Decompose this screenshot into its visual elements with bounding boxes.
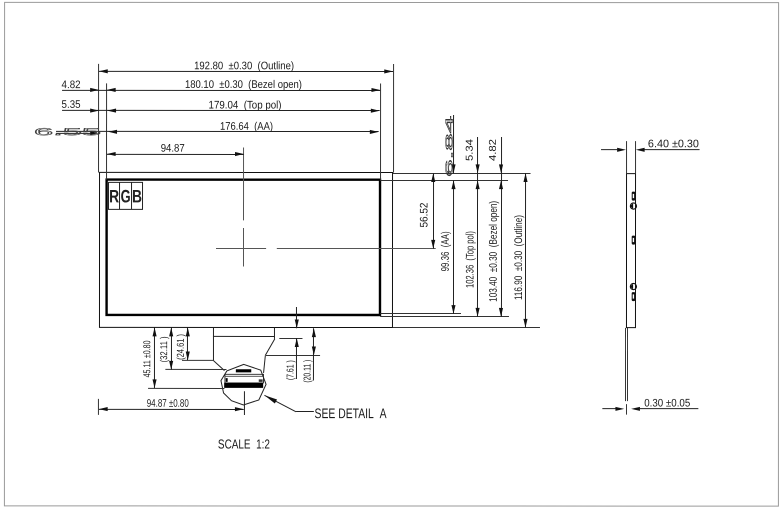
svg-text:(24.61 ): (24.61 ) xyxy=(176,334,187,360)
svg-text:99.36 (AA): 99.36 (AA) xyxy=(440,231,452,271)
svg-text:(7.61 ): (7.61 ) xyxy=(286,360,297,380)
svg-text:180.10 ±0.30 (Bezel open): 180.10 ±0.30 (Bezel open) xyxy=(185,79,302,91)
svg-text:103.40 ±0.30 (Bezel open): 103.40 ±0.30 (Bezel open) xyxy=(488,201,500,302)
svg-text:5.34: 5.34 xyxy=(465,139,476,161)
svg-text:R: R xyxy=(109,186,119,206)
svg-text:SEE DETAIL A: SEE DETAIL A xyxy=(315,405,387,421)
svg-text:179.04 (Top pol): 179.04 (Top pol) xyxy=(209,100,282,112)
svg-text:(32.11 ): (32.11 ) xyxy=(159,336,170,362)
svg-text:6.55: 6.55 xyxy=(34,127,102,138)
svg-text:45.11 ±0.80: 45.11 ±0.80 xyxy=(142,340,153,377)
svg-text:192.80 ±0.30 (Outline): 192.80 ±0.30 (Outline) xyxy=(194,60,294,72)
svg-text:(20.11 ): (20.11 ) xyxy=(303,360,314,383)
svg-text:116.90 ±0.30 (Outline): 116.90 ±0.30 (Outline) xyxy=(513,215,525,300)
svg-text:56.52: 56.52 xyxy=(419,203,431,228)
svg-text:176.64 (AA): 176.64 (AA) xyxy=(220,121,273,133)
svg-text:0.30 ±0.05: 0.30 ±0.05 xyxy=(644,397,690,409)
svg-text:5.35: 5.35 xyxy=(62,99,81,111)
svg-text:4.82: 4.82 xyxy=(62,79,81,91)
svg-text:4.82: 4.82 xyxy=(488,139,499,161)
svg-text:102.36 (Top pol): 102.36 (Top pol) xyxy=(465,231,477,288)
svg-text:6.40 ±0.30: 6.40 ±0.30 xyxy=(648,138,699,150)
svg-text:G: G xyxy=(121,186,131,206)
svg-text:SCALE 1:2: SCALE 1:2 xyxy=(218,437,270,452)
svg-text:B: B xyxy=(132,186,142,206)
svg-text:6.84: 6.84 xyxy=(445,114,456,176)
svg-text:94.87 ±0.80: 94.87 ±0.80 xyxy=(147,398,189,410)
svg-text:94.87: 94.87 xyxy=(161,143,185,155)
